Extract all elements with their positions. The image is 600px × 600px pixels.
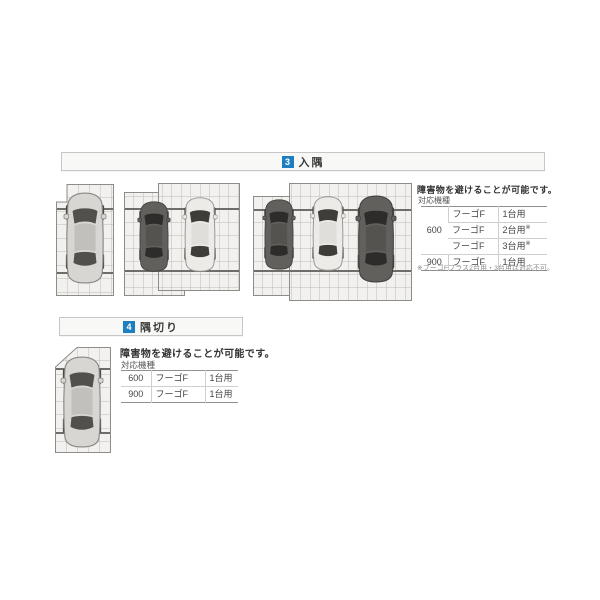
capacity-cell: 1台用 [205, 371, 238, 387]
section-number-badge: 4 [123, 321, 135, 333]
table-row: 600 フーゴF 1台用 [421, 207, 547, 223]
capacity-cell: 1台用 [498, 207, 547, 223]
model-cell: フーゴF [448, 207, 498, 223]
section-number-badge: 3 [282, 156, 294, 168]
size-cell: 900 [121, 387, 151, 403]
car-top-view [183, 198, 217, 271]
irizumi-spec-label: 対応機種 [418, 195, 450, 206]
car-top-view [64, 193, 106, 283]
sumikiri-spec-table: 600 フーゴF 1台用 900 フーゴF 1台用 [121, 370, 238, 403]
section-title: 入隅 [299, 154, 325, 170]
section-header-irizumi: 3 入隅 [61, 152, 545, 171]
section-title: 隅切り [140, 319, 179, 335]
size-cell: 600 [421, 207, 448, 255]
sumikiri-description: 障害物を避けることが可能です。 [120, 345, 275, 360]
table-row: 900 フーゴF 1台用 [121, 387, 238, 403]
car-top-view [356, 196, 396, 282]
irizumi-footnote: ※フーゴFプラス2台用・3台用は対応不可。 [417, 262, 554, 272]
model-cell: フーゴF [151, 371, 205, 387]
section-header-sumikiri: 4 隅切り [59, 317, 243, 336]
diagram-irizumi-2bay [124, 183, 242, 299]
model-cell: フーゴF [448, 223, 498, 239]
table-row: 600 フーゴF 1台用 [121, 371, 238, 387]
car-top-view [138, 202, 171, 271]
diagram-sumikiri-1bay [55, 347, 111, 453]
capacity-cell: 1台用 [205, 387, 238, 403]
diagram-irizumi-1bay [56, 184, 114, 296]
capacity-cell: 3台用※ [498, 239, 547, 255]
model-cell: フーゴF [448, 239, 498, 255]
model-cell: フーゴF [151, 387, 205, 403]
diagram-irizumi-3bay [253, 183, 413, 302]
size-cell: 600 [121, 371, 151, 387]
capacity-cell: 2台用※ [498, 223, 547, 239]
car-top-view [263, 200, 296, 269]
car-top-view [61, 357, 103, 447]
car-top-view [311, 197, 345, 270]
